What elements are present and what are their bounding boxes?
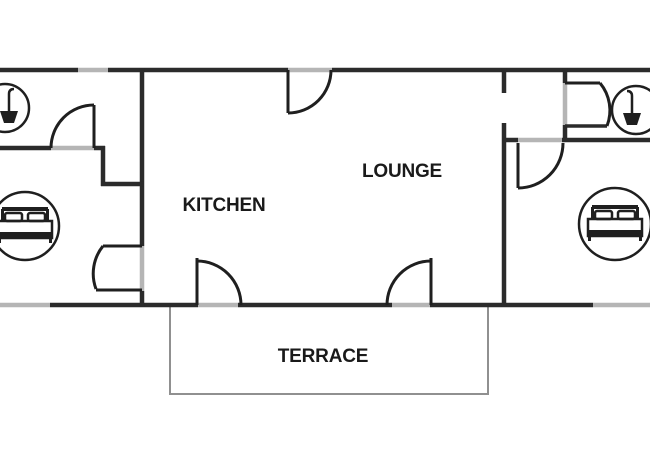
double-bed-icon: [579, 188, 650, 260]
room-label-kitchen: KITCHEN: [182, 195, 265, 217]
right-bedroom-door-arc: [518, 143, 563, 188]
bed-blanket-band: [588, 230, 642, 236]
double-bed-icon: [0, 192, 59, 260]
entrance-door-arc: [288, 70, 331, 113]
bed-blanket-band: [0, 232, 52, 238]
left-bedroom-door-arc: [93, 246, 103, 289]
shower-icon-circle: [0, 84, 29, 132]
door-swings: [51, 70, 610, 305]
shower-icon: [612, 86, 650, 134]
lounge-terrace-door-arc: [387, 261, 431, 305]
shower-icon: [0, 84, 29, 132]
kitchen-terrace-door-arc: [197, 261, 241, 305]
floor-plan-drawing: [0, 0, 650, 450]
exterior-walls: [0, 70, 650, 305]
left-bathroom-door-arc: [51, 105, 94, 148]
right-bathroom-door-arc: [600, 83, 610, 126]
wall-openings: [0, 70, 650, 305]
floor-plan-canvas: KITCHEN LOUNGE TERRACE: [0, 0, 650, 450]
interior-walls: [0, 68, 650, 307]
room-label-terrace: TERRACE: [278, 346, 368, 368]
room-label-lounge: LOUNGE: [362, 161, 442, 183]
bed-icon-circle: [579, 188, 650, 260]
bed-icon-circle: [0, 192, 59, 260]
